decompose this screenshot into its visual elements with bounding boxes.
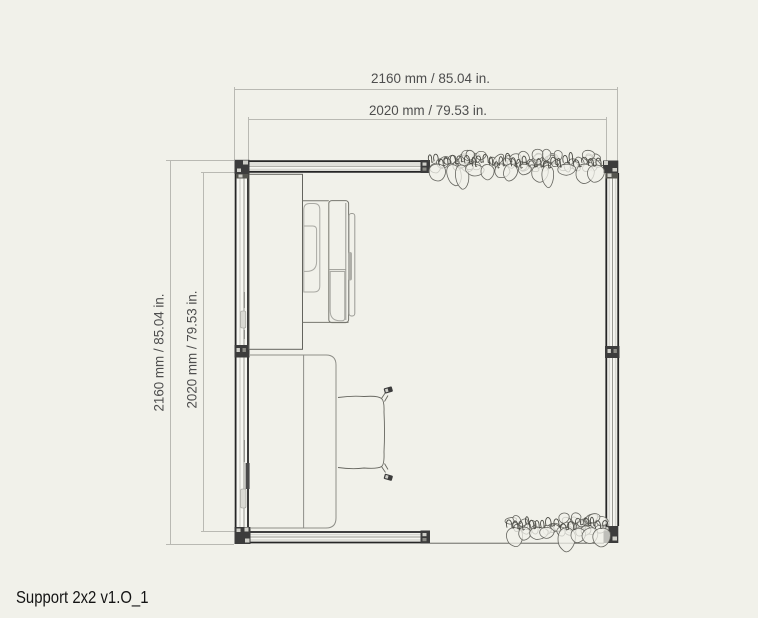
svg-text:2160 mm / 85.04 in.: 2160 mm / 85.04 in. <box>371 70 490 86</box>
svg-text:2020 mm / 79.53 in.: 2020 mm / 79.53 in. <box>369 102 487 118</box>
svg-text:2160 mm / 85.04 in.: 2160 mm / 85.04 in. <box>151 294 167 412</box>
svg-text:Support 2x2 v1.O_1: Support 2x2 v1.O_1 <box>16 587 149 608</box>
svg-text:2020 mm / 79.53 in.: 2020 mm / 79.53 in. <box>184 291 200 409</box>
